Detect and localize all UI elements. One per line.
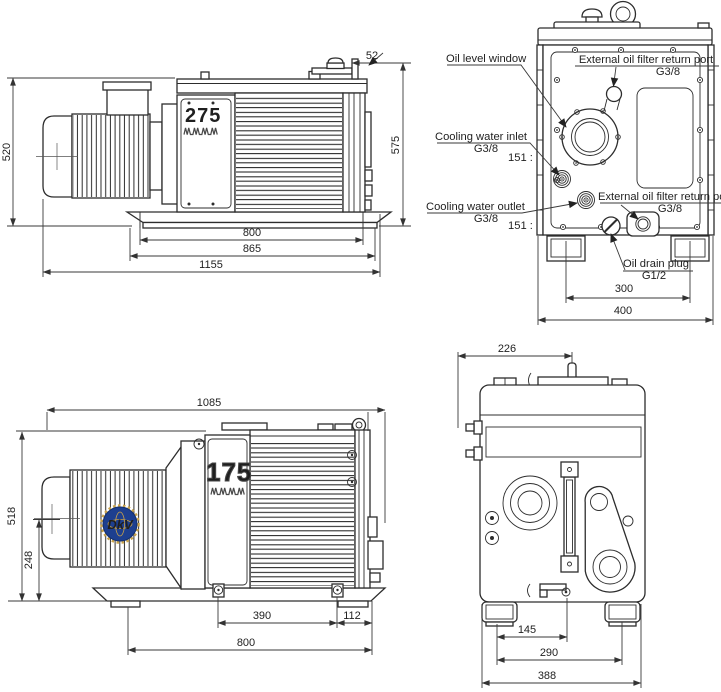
label-water-inlet-note: 151 : (508, 152, 533, 164)
dim-390: 390 (253, 610, 271, 622)
dim-1155: 1155 (199, 259, 223, 271)
dim-400: 400 (614, 305, 632, 317)
label-filter-return: External oil filter return port (598, 191, 721, 203)
pump-body (194, 419, 383, 589)
model-number-275: 275 (185, 105, 221, 127)
pump-dimensional-drawing: 275 520 575 52 800 865 1155 (0, 0, 721, 692)
dkv-logo-text: DkV (107, 517, 134, 532)
label-oil-level-window: Oil level window (446, 53, 527, 65)
view-side-175: DkV 175 1085 (6, 397, 385, 655)
view-rear: Oil level window External oil filter ret… (426, 2, 721, 326)
external-oil-filter-return-port-bottom (627, 212, 659, 236)
coupling-housing (166, 441, 205, 589)
dim-865: 865 (243, 243, 261, 255)
coupling-housing (150, 104, 178, 204)
model-number-175: 175 (206, 457, 252, 487)
oil-sight-glass (561, 462, 578, 572)
label-water-outlet: Cooling water outlet (426, 201, 526, 213)
pump-body (177, 58, 372, 212)
dim-300: 300 (615, 283, 633, 295)
technical-drawing: 275 520 575 52 800 865 1155 (0, 0, 721, 692)
label-filter-return-port-size: G3/8 (656, 66, 680, 78)
view-side-275: 275 520 575 52 800 865 1155 (1, 50, 411, 277)
oil-drain-plug (602, 217, 620, 235)
top-plate (538, 28, 712, 45)
terminal-box (107, 88, 148, 115)
label-water-inlet: Cooling water inlet (435, 131, 528, 143)
dim-112: 112 (343, 610, 361, 622)
dim-52: 52 (366, 50, 378, 62)
cooling-water-outlet-port (578, 192, 595, 209)
dim-800-base: 800 (237, 637, 255, 649)
dim-518: 518 (6, 507, 18, 525)
base-plate (127, 212, 391, 228)
label-water-outlet-note: 151 : (508, 220, 533, 232)
side-port (368, 541, 383, 569)
oil-fill-cap (327, 63, 344, 69)
dim-520: 520 (1, 143, 13, 161)
dim-226: 226 (498, 343, 516, 355)
label-filter-return-port: External oil filter return port (579, 54, 714, 66)
dim-800: 800 (243, 227, 261, 239)
label-oil-drain: Oil drain plug (623, 258, 689, 270)
cooling-water-inlet-port (554, 171, 571, 188)
label-water-inlet-size: G3/8 (474, 143, 498, 155)
front-feet (482, 602, 640, 626)
motor (34, 470, 166, 567)
dim-145: 145 (518, 624, 536, 636)
dim-1085: 1085 (197, 397, 221, 409)
cooling-fins (236, 96, 342, 209)
dim-388: 388 (538, 670, 556, 682)
view-front: 226 145 290 388 (458, 343, 645, 688)
oil-fill-cap (582, 9, 602, 23)
cooling-fins (251, 441, 354, 586)
dim-290: 290 (540, 647, 558, 659)
motor (36, 82, 151, 198)
dim-575: 575 (390, 136, 402, 154)
label-water-outlet-size: G3/8 (474, 213, 498, 225)
port-stub (352, 59, 358, 79)
label-filter-return-size: G3/8 (658, 203, 682, 215)
dim-248: 248 (23, 551, 35, 569)
label-oil-drain-size: G1/2 (642, 270, 666, 282)
